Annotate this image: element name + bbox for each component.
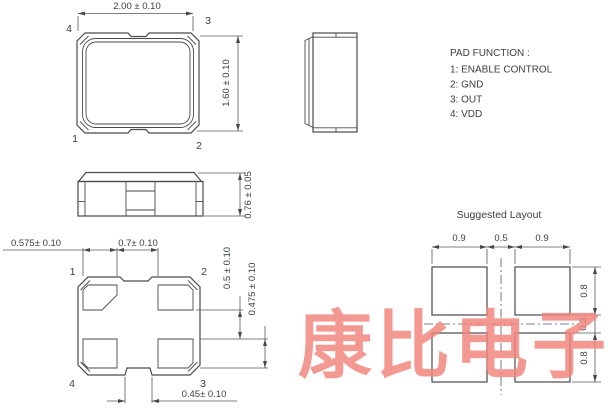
layout-left-pad-width-dim: 0.9 <box>452 233 465 244</box>
pin-label-4: 4 <box>69 378 75 390</box>
arrowhead <box>263 361 267 368</box>
pin-label-2: 2 <box>196 140 202 152</box>
layout-pad-bottom-right <box>515 333 570 382</box>
notch-width-dim: 0.45± 0.10 <box>182 389 227 400</box>
layout-bottom-pad-height-dim: 0.8 <box>579 351 590 364</box>
pin-label-1: 1 <box>70 266 76 278</box>
top-view: 2.00 ± 0.10 1.60 ± 0.10 4 3 1 2 <box>66 1 243 152</box>
pin-label-2: 2 <box>201 266 207 278</box>
lid-outline-inner <box>86 42 190 124</box>
arrowhead <box>563 245 570 249</box>
arrowhead <box>152 399 159 403</box>
package-drawing-svg: 2.00 ± 0.10 1.60 ± 0.10 4 3 1 2 PAD FUNC… <box>0 0 615 411</box>
vertical-gap-dim: 0.5 ± 0.10 <box>222 247 233 289</box>
arrowhead <box>236 124 240 131</box>
layout-pad-bottom-left <box>432 333 487 382</box>
arrowhead <box>238 209 242 216</box>
arrowhead <box>83 248 90 252</box>
arrowhead <box>487 245 494 249</box>
package-outline <box>77 33 199 133</box>
layout-right-pad-width-dim: 0.9 <box>535 233 548 244</box>
pad-function-item-1: 1: ENABLE CONTROL <box>450 65 553 76</box>
arrowhead <box>593 375 597 382</box>
suggested-layout: Suggested Layout 0.9 0.5 0.9 0.8 0.3 <box>424 209 601 395</box>
arrowhead <box>238 173 242 180</box>
layout-pad-top-right <box>515 267 570 315</box>
pad-2 <box>158 285 193 310</box>
arrowhead <box>593 333 597 340</box>
arrowhead <box>432 245 439 249</box>
arrowhead <box>480 245 487 249</box>
pad-4 <box>83 339 117 368</box>
pad-function-item-2: 2: GND <box>450 80 483 91</box>
side-view <box>305 33 357 132</box>
front-body <box>78 182 203 217</box>
arrowhead <box>238 332 242 339</box>
suggested-layout-title: Suggested Layout <box>457 209 542 221</box>
pin-label-3: 3 <box>200 378 206 390</box>
arrowhead <box>593 267 597 274</box>
pad-function-item-4: 4: VDD <box>450 109 482 120</box>
bottom-view: 0.575± 0.10 0.7± 0.10 0.5 ± 0.10 0.475 ±… <box>3 238 268 403</box>
layout-top-pad-height-dim: 0.8 <box>579 284 590 297</box>
pad-1 <box>83 285 117 310</box>
arrowhead <box>263 339 267 346</box>
pad-function-legend: PAD FUNCTION : 1: ENABLE CONTROL 2: GND … <box>450 48 553 120</box>
arrowhead <box>593 308 597 315</box>
front-view-height-dim: 0.76 ± 0.05 <box>243 171 254 218</box>
arrowhead <box>186 12 193 16</box>
side-body <box>313 33 357 132</box>
pad-width-dim: 0.575± 0.10 <box>11 238 61 249</box>
lid-outline-outer <box>83 39 194 128</box>
layout-center-gap-dim: 0.5 <box>494 233 507 244</box>
arrowhead <box>110 248 117 252</box>
pad-function-item-3: 3: OUT <box>450 95 482 106</box>
pad-height-dim: 0.475 ± 0.10 <box>247 263 258 316</box>
arrowhead <box>238 310 242 317</box>
pad-3 <box>158 339 193 368</box>
package-outline-bottom <box>78 277 200 375</box>
front-view: 0.76 ± 0.05 <box>78 171 254 218</box>
arrowhead <box>236 36 240 43</box>
top-view-height-dim: 1.60 ± 0.10 <box>221 59 232 106</box>
pin-label-1: 1 <box>72 133 78 145</box>
arrowhead <box>118 399 125 403</box>
pin-label-4: 4 <box>66 23 72 35</box>
arrowhead <box>515 245 522 249</box>
pin-label-3: 3 <box>205 15 211 27</box>
datasheet-drawing-page: 2.00 ± 0.10 1.60 ± 0.10 4 3 1 2 PAD FUNC… <box>0 0 615 411</box>
arrowhead <box>78 12 85 16</box>
layout-pad-top-left <box>432 267 487 315</box>
top-view-width-dim: 2.00 ± 0.10 <box>113 1 160 12</box>
pad-function-title: PAD FUNCTION : <box>450 48 530 59</box>
layout-row-gap-dim: 0.3 <box>578 317 589 330</box>
pad-gap-dim: 0.7± 0.10 <box>118 238 158 249</box>
arrowhead <box>508 245 515 249</box>
front-lid <box>79 173 202 182</box>
corner-seam <box>188 281 198 291</box>
corner-seam <box>81 362 91 372</box>
